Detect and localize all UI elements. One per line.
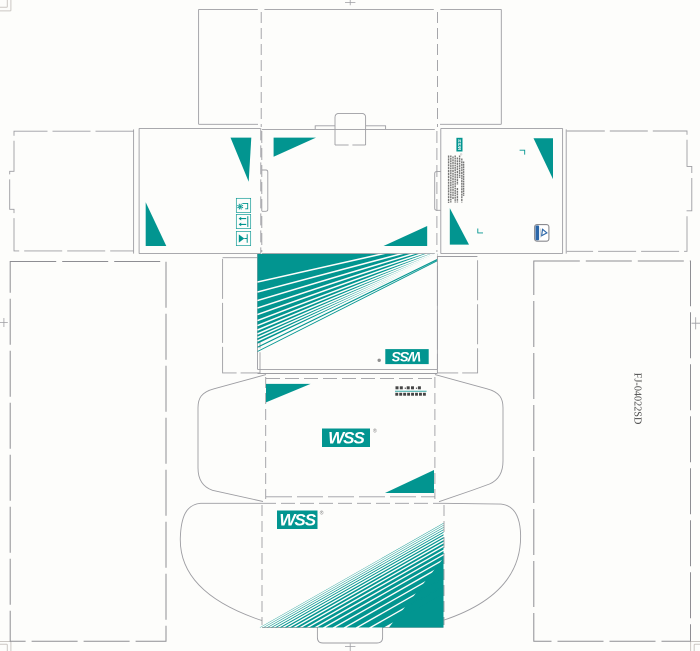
svg-text:FJ-04022SD: FJ-04022SD: [631, 373, 642, 425]
svg-text:®: ®: [320, 510, 324, 517]
svg-text:®: ®: [373, 428, 377, 435]
svg-text:WSS: WSS: [279, 510, 316, 529]
svg-text:WSS: WSS: [328, 428, 365, 447]
svg-text:WSS: WSS: [457, 138, 463, 150]
svg-text:WSS: WSS: [391, 349, 421, 364]
